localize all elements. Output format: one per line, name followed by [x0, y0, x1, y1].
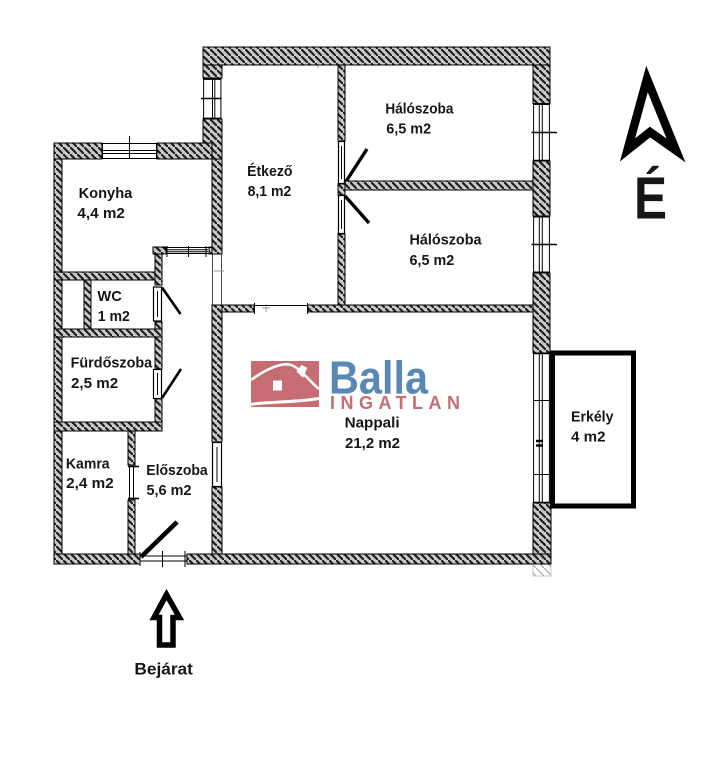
svg-text:Előszoba: Előszoba [146, 463, 208, 479]
svg-text:1 m2: 1 m2 [98, 308, 130, 325]
svg-text:6,5 m2: 6,5 m2 [410, 253, 455, 269]
svg-text:Hálószoba: Hálószoba [410, 233, 483, 249]
svg-text:Kamra: Kamra [66, 456, 110, 473]
svg-text:2,4 m2: 2,4 m2 [66, 476, 114, 492]
svg-text:6,5 m2: 6,5 m2 [386, 122, 431, 138]
svg-text:2,5 m2: 2,5 m2 [71, 376, 118, 392]
svg-text:INGATLAN: INGATLAN [330, 393, 460, 413]
svg-text:Bejárat: Bejárat [134, 659, 193, 678]
svg-text:5,6 m2: 5,6 m2 [147, 483, 192, 499]
svg-text:Étkező: Étkező [247, 163, 293, 180]
svg-text:4,4 m2: 4,4 m2 [77, 206, 125, 222]
svg-text:Erkély: Erkély [571, 410, 614, 426]
svg-text:8,1 m2: 8,1 m2 [248, 184, 292, 200]
svg-text:Hálószoba: Hálószoba [385, 102, 454, 118]
svg-text:21,2 m2: 21,2 m2 [345, 436, 400, 452]
svg-text:Nappali: Nappali [345, 416, 400, 432]
svg-text:WC: WC [97, 288, 122, 305]
svg-text:Konyha: Konyha [79, 186, 134, 202]
svg-text:Fürdőszoba: Fürdőszoba [71, 356, 154, 372]
svg-text:É: É [634, 166, 667, 232]
svg-text:4 m2: 4 m2 [571, 430, 606, 446]
